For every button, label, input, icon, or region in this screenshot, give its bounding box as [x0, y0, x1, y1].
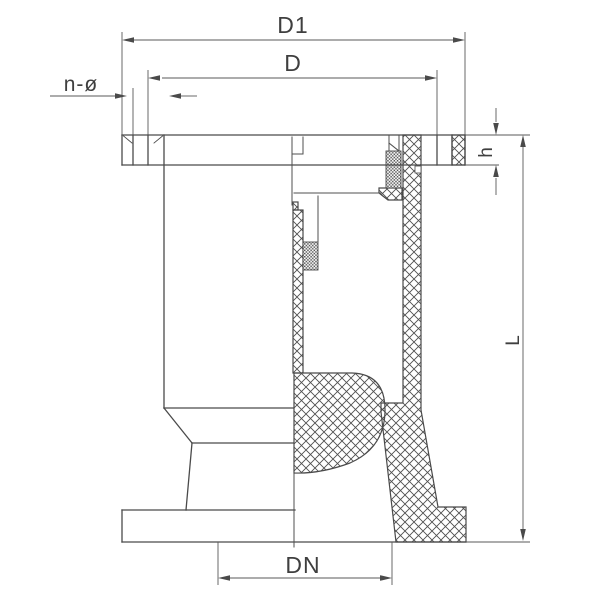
label-n-phi: n-ø [64, 73, 99, 96]
engineering-drawing: D1 D n-ø h L DN [0, 0, 600, 600]
float-cage-wall-nub [293, 202, 298, 210]
cage-seal [303, 242, 318, 270]
cover-body-joint-notch [415, 166, 421, 173]
cover-seal [386, 151, 401, 188]
flange-rim-section [452, 135, 465, 165]
label-d1: D1 [277, 12, 308, 38]
label-l: L [503, 334, 524, 346]
valve-section-canvas: D1 D n-ø h L DN [0, 0, 600, 600]
float-cage-wall-section [293, 210, 303, 373]
label-dn: DN [285, 552, 320, 578]
label-h: h [476, 146, 497, 158]
label-d: D [284, 50, 302, 76]
